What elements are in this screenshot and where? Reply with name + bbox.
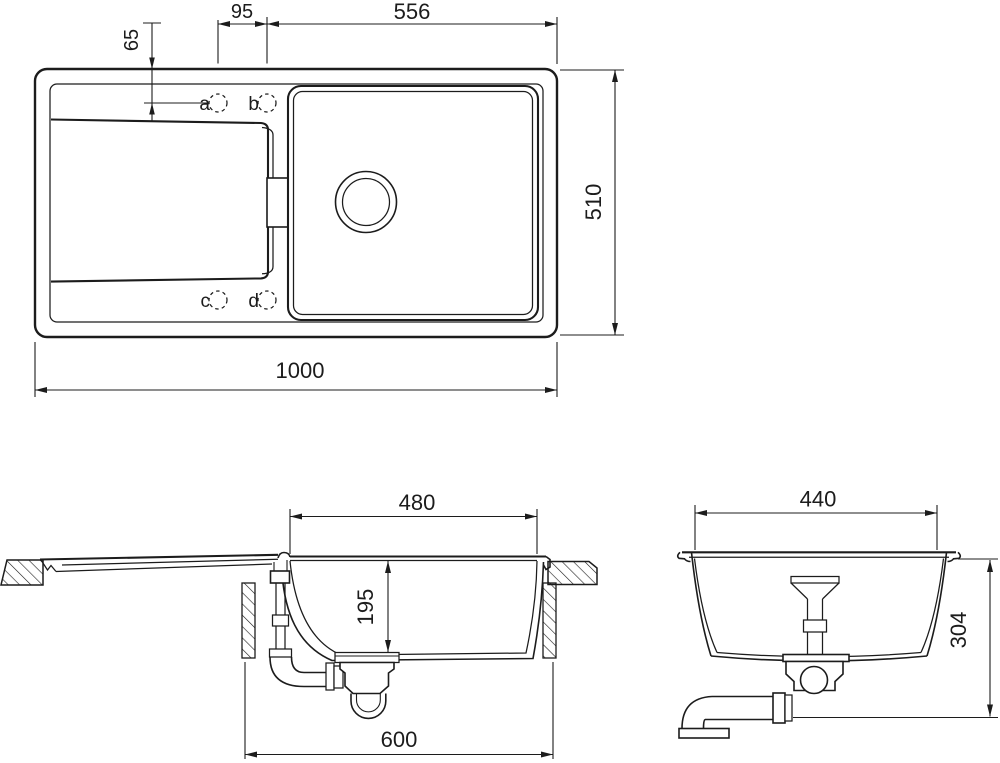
dim-bowl-depth-label: 195 bbox=[353, 589, 378, 626]
rim-right-hook-end bbox=[948, 552, 961, 561]
sink-technical-drawing: a b c d 95 556 65 bbox=[0, 0, 1000, 763]
right-wall-outer bbox=[927, 553, 947, 657]
bowl-outer-profile bbox=[282, 562, 544, 661]
drainboard-surface-line bbox=[62, 559, 278, 565]
sink-outer-edge bbox=[35, 69, 557, 337]
tap-hole-b-label: b bbox=[248, 94, 259, 115]
dim-cabinet-width: 600 bbox=[245, 662, 553, 759]
dim-overall-width-label: 1000 bbox=[276, 358, 325, 383]
cabinet-panel-left bbox=[242, 583, 255, 658]
tap-hole-a bbox=[209, 94, 227, 112]
drawing-canvas: a b c d 95 556 65 bbox=[0, 0, 1000, 763]
bowl-outer-edge bbox=[288, 86, 538, 320]
dim-overall-width: 1000 bbox=[35, 342, 557, 397]
dim-hole-offset-label: 65 bbox=[121, 29, 143, 51]
tap-hole-c-label: c bbox=[201, 291, 211, 312]
tap-hole-b bbox=[258, 94, 276, 112]
tap-hole-d-label: d bbox=[248, 291, 259, 312]
dim-overall-depth-label: 510 bbox=[581, 184, 606, 221]
side-section-view: 480 195 600 bbox=[1, 490, 597, 759]
left-wall-outer bbox=[692, 553, 712, 657]
rim-left-hook bbox=[678, 552, 691, 561]
end-section-view: 440 304 bbox=[678, 487, 998, 739]
tap-hole-c bbox=[209, 291, 227, 309]
drainboard-top-edge bbox=[40, 555, 278, 560]
dim-bowl-length: 480 bbox=[290, 490, 537, 554]
drain-trap-end bbox=[679, 655, 849, 739]
counter-right-hatch bbox=[548, 562, 597, 585]
dim-bowl-width-label: 440 bbox=[800, 487, 837, 512]
divider-lip bbox=[278, 553, 290, 559]
cabinet-panel-right bbox=[543, 583, 556, 658]
dim-hole-spacing-label: 95 bbox=[231, 1, 253, 23]
dim-hole-offset: 65 bbox=[121, 23, 207, 121]
overflow-pipe bbox=[270, 571, 344, 690]
drain-standpipe bbox=[791, 577, 839, 655]
dim-overall-height-label: 304 bbox=[946, 612, 971, 649]
tap-hole-d bbox=[258, 291, 276, 309]
counter-left-hatch bbox=[1, 560, 43, 585]
drain-outer-circle bbox=[336, 172, 397, 233]
dim-overall-depth: 510 bbox=[560, 70, 624, 335]
tap-hole-a-label: a bbox=[199, 94, 210, 115]
divider-connector bbox=[267, 178, 288, 227]
dim-bowl-span-label: 556 bbox=[394, 0, 431, 24]
dim-bowl-span: 556 bbox=[267, 0, 557, 64]
drain-inner-circle bbox=[343, 179, 390, 226]
dim-hole-spacing: 95 bbox=[218, 1, 267, 64]
drainboard-underside bbox=[56, 564, 272, 572]
bowl-inner-edge bbox=[294, 92, 533, 315]
dim-cabinet-width-label: 600 bbox=[381, 727, 418, 752]
dim-bowl-depth: 195 bbox=[353, 561, 388, 652]
dim-bowl-width: 440 bbox=[695, 487, 937, 551]
plan-view: a b c d 95 556 65 bbox=[35, 0, 624, 397]
dim-bowl-length-label: 480 bbox=[399, 490, 436, 515]
drain-trap-side bbox=[335, 653, 399, 719]
bowl-inner-profile bbox=[290, 561, 537, 655]
drainboard-outline bbox=[51, 120, 268, 282]
